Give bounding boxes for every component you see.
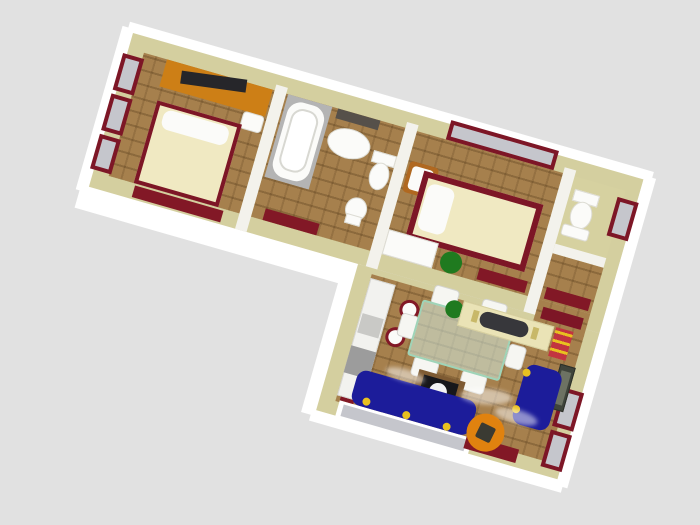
window-glass (612, 202, 634, 237)
window-glass (118, 58, 140, 91)
window-glass (95, 139, 116, 170)
window-glass (545, 434, 567, 467)
floorplan-render-canvas[interactable] (0, 0, 700, 525)
window-glass (106, 98, 128, 131)
apartment-plan (47, 33, 643, 479)
